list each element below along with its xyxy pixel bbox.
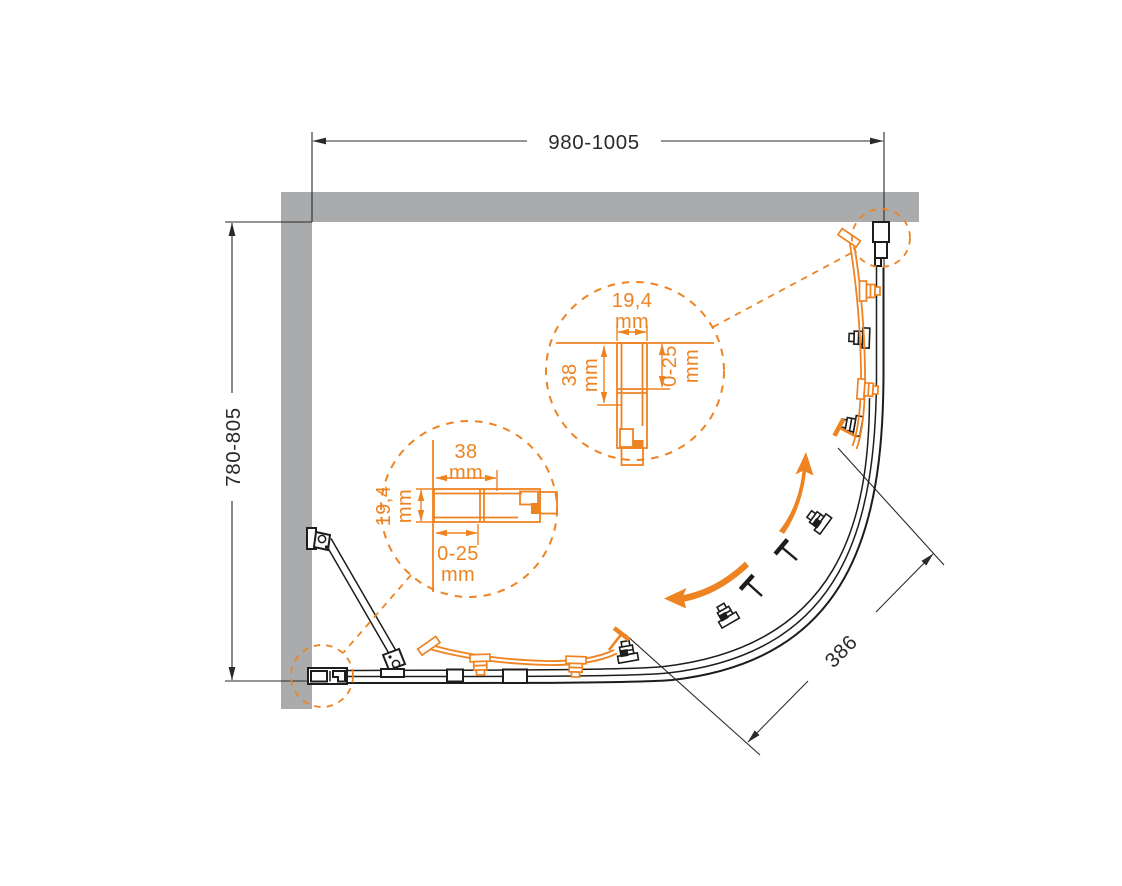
profile-depth-unit: mm <box>580 358 602 392</box>
slide-direction-arrow-down <box>664 562 749 609</box>
profile-section <box>617 343 647 465</box>
profile-width-unit: mm <box>615 311 649 333</box>
roller-orange <box>470 654 491 675</box>
extension-line <box>838 448 944 565</box>
depth-dimension-label: 780-805 <box>222 407 245 486</box>
width-dimension-label: 980-1005 <box>548 131 639 154</box>
leader-line <box>713 251 855 327</box>
profile-depth-label: 38 <box>559 363 581 386</box>
technical-drawing-page: 980-1005 780-805 386 <box>0 0 1122 886</box>
fixed-panel-bracket <box>775 540 803 568</box>
profile-adjustment-label: 0-25 <box>437 543 479 565</box>
shower-enclosure-plan-drawing: 980-1005 780-805 386 <box>0 0 1122 886</box>
profile-depth-label: 19,4 <box>373 486 395 527</box>
profile-adjustment-unit: mm <box>681 349 703 383</box>
rail-joint-block <box>503 670 527 684</box>
fixed-panel-bracket <box>740 575 768 603</box>
roller-orange <box>857 379 879 400</box>
profile-width-unit: mm <box>449 462 483 484</box>
door-end-cap <box>418 636 440 655</box>
dimension-line <box>748 681 808 742</box>
support-bar-foot-plate <box>381 669 404 677</box>
curved-rail-top-edge <box>347 398 870 671</box>
profile-depth-unit: mm <box>394 489 416 523</box>
profile-width-label: 38 <box>454 441 477 463</box>
wall-profile-top <box>873 222 889 266</box>
detail-view-vertical-profile: 19,4 mm 38 mm 0-25 mm <box>546 282 724 465</box>
profile-section <box>434 489 557 522</box>
detail-view-horizontal-profile: 38 mm 19,4 mm 0-25 mm <box>373 421 557 597</box>
profile-adjustment-unit: mm <box>441 564 475 586</box>
roller-black-wheel <box>620 649 629 657</box>
dimension-line <box>876 554 933 612</box>
wall-left <box>281 192 312 709</box>
leader-line <box>343 575 411 653</box>
wall-profile-bottom <box>308 668 347 684</box>
rail-joint-block <box>447 670 463 682</box>
profile-width-label: 19,4 <box>612 290 653 312</box>
wall-top <box>281 192 919 222</box>
extension-line <box>625 634 760 755</box>
opening-dimension-label: 386 <box>821 631 863 673</box>
detail-callouts: 19,4 mm 38 mm 0-25 mm <box>291 209 910 707</box>
profile-adjustment-label: 0-25 <box>659 345 681 387</box>
roller-orange <box>565 656 586 677</box>
slide-direction-arrow-up <box>779 452 814 534</box>
